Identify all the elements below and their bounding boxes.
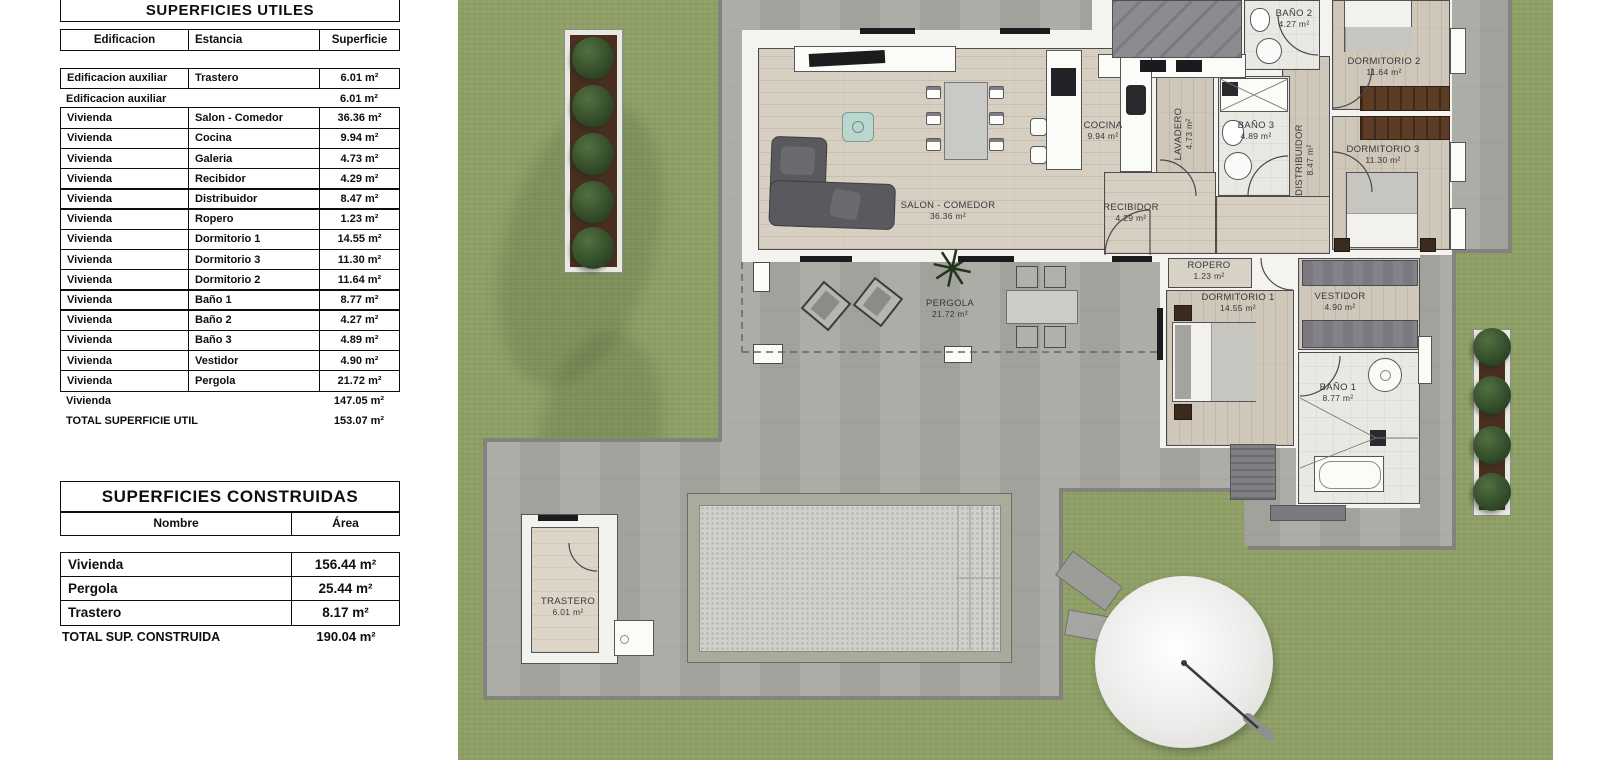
gallery-window xyxy=(1176,60,1202,72)
room-label-lavadero: LAVADERO 4.73 m² xyxy=(1173,108,1195,161)
table-total-row: TOTAL SUP. CONSTRUIDA 190.04 m² xyxy=(60,626,400,648)
wardrobe xyxy=(1360,116,1450,140)
table-row: Vivienda Baño 1 8.77 m² xyxy=(60,289,400,311)
room-label-bano2: BAÑO 2 4.27 m² xyxy=(1276,8,1313,30)
sofa xyxy=(768,136,897,230)
dining-table xyxy=(944,82,988,160)
shower-drain-icon xyxy=(1370,430,1386,446)
nightstand xyxy=(1174,404,1192,420)
outdoor-chair xyxy=(1016,266,1038,288)
pergola-post xyxy=(753,344,783,364)
tree xyxy=(1473,376,1511,414)
table-row: Vivienda Galeria 4.73 m² xyxy=(60,148,400,170)
entrance-door-sill xyxy=(1112,256,1152,262)
room-label-dorm2: DORMITORIO 2 11.64 m² xyxy=(1347,56,1420,78)
nightstand xyxy=(1334,238,1350,252)
table-row: Vivienda Baño 2 4.27 m² xyxy=(60,309,400,331)
tree xyxy=(572,37,614,79)
window-frame xyxy=(860,28,915,34)
outdoor-table xyxy=(1006,290,1078,324)
outdoor-chair xyxy=(1044,266,1066,288)
table-subtotal-row: Edificacion auxiliar 6.01 m² xyxy=(60,89,400,109)
window-frame xyxy=(1000,28,1050,34)
room-label-recibidor: RECIBIDOR 4.29 m² xyxy=(1103,202,1158,224)
dining-chair xyxy=(926,138,941,151)
tree xyxy=(572,227,614,269)
ac-unit xyxy=(614,620,654,656)
area-tables-panel: SUPERFICIES UTILES Edificacion Estancia … xyxy=(60,0,400,648)
sink-icon xyxy=(1368,358,1402,392)
outdoor-chair xyxy=(1044,326,1066,348)
bed xyxy=(1344,0,1412,52)
table-row: Vivienda Salon - Comedor 36.36 m² xyxy=(60,107,400,129)
table-row: Vivienda Baño 3 4.89 m² xyxy=(60,330,400,352)
stool xyxy=(1030,146,1047,164)
dining-chair xyxy=(989,138,1004,151)
gallery-roof xyxy=(1112,0,1242,58)
side-table xyxy=(842,112,874,142)
table-row: Vivienda 156.44 m² xyxy=(60,552,400,578)
room-label-vestidor: VESTIDOR 4.90 m² xyxy=(1315,291,1366,313)
table-utiles-title: SUPERFICIES UTILES xyxy=(60,0,400,22)
table-row: Vivienda Dormitorio 3 11.30 m² xyxy=(60,249,400,271)
table-row: Pergola 25.44 m² xyxy=(60,576,400,602)
table-row: Vivienda Recibidor 4.29 m² xyxy=(60,168,400,190)
dining-chair xyxy=(926,112,941,125)
toilet-icon xyxy=(1250,8,1270,32)
tree xyxy=(1473,328,1511,366)
table-utiles-header: Edificacion Estancia Superficie xyxy=(60,29,400,51)
table-row: Vivienda Ropero 1.23 m² xyxy=(60,208,400,230)
dining-chair xyxy=(989,112,1004,125)
tree xyxy=(1473,426,1511,464)
table-row: Vivienda Vestidor 4.90 m² xyxy=(60,350,400,372)
table-row: Vivienda Dormitorio 1 14.55 m² xyxy=(60,229,400,251)
table-construidas-title: SUPERFICIES CONSTRUIDAS xyxy=(60,481,400,513)
nightstand xyxy=(1420,238,1436,252)
pool-basin xyxy=(699,505,1001,652)
window-frame xyxy=(958,256,1014,262)
bed xyxy=(1172,322,1256,402)
storage-window-sill xyxy=(538,515,578,521)
kitchen-island xyxy=(1046,50,1082,170)
table-row: Vivienda Dormitorio 2 11.64 m² xyxy=(60,269,400,291)
stool xyxy=(1030,118,1047,136)
room-label-pergola: PERGOLA 21.72 m² xyxy=(926,298,974,320)
table-row: Vivienda Cocina 9.94 m² xyxy=(60,128,400,150)
window-sill xyxy=(1418,336,1432,384)
floor-plan-sheet: SUPERFICIES UTILES Edificacion Estancia … xyxy=(0,0,1620,760)
room-label-cocina: COCINA 9.94 m² xyxy=(1084,120,1123,142)
tree xyxy=(1473,473,1511,511)
tree xyxy=(572,85,614,127)
column-header: Edificacion xyxy=(61,30,188,50)
closet-unit xyxy=(1302,320,1418,348)
shower-head-icon xyxy=(1222,82,1238,96)
window-sill xyxy=(1450,208,1466,250)
table-row: Vivienda Pergola 21.72 m² xyxy=(60,370,400,392)
column-header: Superficie xyxy=(319,30,399,50)
tree xyxy=(572,133,614,175)
outdoor-chair xyxy=(1016,326,1038,348)
bathtub xyxy=(1314,456,1384,492)
table-construidas-body: Vivienda 156.44 m² Pergola 25.44 m² Tras… xyxy=(60,552,400,648)
sink-icon xyxy=(1224,152,1252,180)
nightstand xyxy=(1174,305,1192,321)
room-label-distribuidor: DISTRIBUIDOR 8.47 m² xyxy=(1294,124,1316,196)
room-label-ropero: ROPERO 1.23 m² xyxy=(1188,260,1231,282)
column-header: Nombre xyxy=(61,512,291,535)
door-mat xyxy=(1270,505,1346,521)
window-sill xyxy=(1450,142,1466,182)
tree xyxy=(572,181,614,223)
sink-icon xyxy=(1256,38,1282,64)
room-label-dorm1: DORMITORIO 1 14.55 m² xyxy=(1201,292,1274,314)
table-construidas-header: Nombre Área xyxy=(60,511,400,536)
dining-chair xyxy=(926,86,941,99)
table-row: Edificacion auxiliar Trastero 6.01 m² xyxy=(60,68,400,90)
table-row: Trastero 8.17 m² xyxy=(60,600,400,626)
room-label-trastero: TRASTERO 6.01 m² xyxy=(541,596,595,618)
pergola-post xyxy=(753,262,770,292)
table-total-row: TOTAL SUPERFICIE UTIL 153.07 m² xyxy=(60,411,400,431)
room-label-dorm3: DORMITORIO 3 11.30 m² xyxy=(1346,144,1419,166)
terrace-step xyxy=(1230,444,1276,500)
room-label-bano3: BAÑO 3 4.89 m² xyxy=(1238,120,1275,142)
window-frame xyxy=(800,256,852,262)
pergola-post xyxy=(944,346,972,363)
tv-icon xyxy=(809,50,886,67)
table-utiles-body: Edificacion auxiliar Trastero 6.01 m² Ed… xyxy=(60,68,400,431)
room-label-bano1: BAÑO 1 8.77 m² xyxy=(1320,382,1357,404)
room-label-salon: SALON - COMEDOR 36.36 m² xyxy=(901,200,996,222)
table-row: Vivienda Distribuidor 8.47 m² xyxy=(60,188,400,210)
ac-fan-icon xyxy=(620,635,629,644)
window-sill xyxy=(1450,28,1466,74)
column-header: Estancia xyxy=(188,30,319,50)
tv-sideboard xyxy=(794,46,956,72)
table-subtotal-row: Vivienda 147.05 m² xyxy=(60,392,400,412)
gallery-window xyxy=(1140,60,1166,72)
sink-icon xyxy=(1126,85,1146,115)
dining-chair xyxy=(989,86,1004,99)
cooktop-icon xyxy=(1051,68,1076,96)
storage-floor xyxy=(531,527,599,653)
window-frame xyxy=(1157,308,1163,360)
bed xyxy=(1346,172,1418,248)
column-header: Área xyxy=(291,512,399,535)
closet-unit xyxy=(1302,260,1418,286)
passage-floor xyxy=(1216,196,1330,254)
pool xyxy=(687,493,1012,663)
wardrobe xyxy=(1360,86,1450,111)
parasol xyxy=(1095,576,1273,748)
